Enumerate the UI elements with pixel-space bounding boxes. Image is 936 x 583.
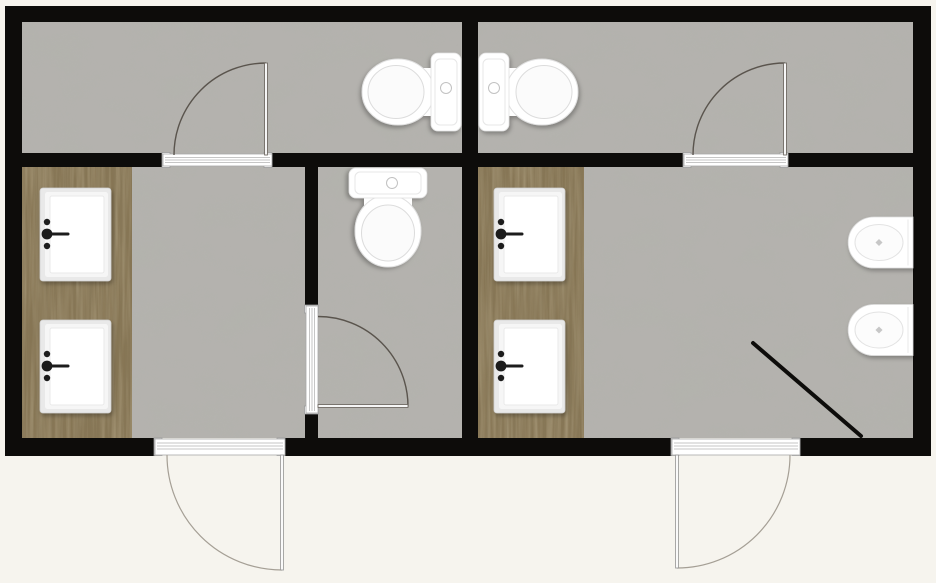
- sink-left-upper: [40, 188, 111, 281]
- door-leaf: [281, 455, 284, 570]
- wall-middle-b: [272, 153, 462, 167]
- floor-plan-drawing: Restroom floor plan — two washrooms with…: [0, 0, 936, 583]
- wall-middle-c: [478, 153, 684, 167]
- door-leaf: [318, 405, 408, 408]
- bidet-upper: [848, 217, 913, 268]
- bidet-lower: [848, 305, 913, 356]
- door-leaf: [784, 63, 787, 155]
- wall-outer-right: [913, 6, 931, 456]
- wall-outer-left: [5, 6, 22, 456]
- wall-center-divider: [462, 22, 478, 438]
- wall-outer-bottom-a: [5, 438, 155, 456]
- sink-left-lower: [40, 320, 111, 413]
- wall-outer-bottom-b: [285, 438, 672, 456]
- door-leaf: [265, 63, 268, 155]
- wall-middle-d: [788, 153, 913, 167]
- wall-wc-upper: [305, 167, 318, 306]
- wall-middle-a: [22, 153, 163, 167]
- wall-wc-lower: [305, 413, 318, 438]
- toilet-top-right: [479, 53, 578, 131]
- sink-right-lower: [494, 320, 565, 413]
- toilet-top-left: [362, 53, 461, 131]
- floor-plan-canvas: Restroom floor plan — two washrooms with…: [0, 0, 936, 583]
- toilet-central-wc: [349, 168, 427, 267]
- sink-right-upper: [494, 188, 565, 281]
- wall-outer-bottom-c: [800, 438, 931, 456]
- wall-outer-top: [5, 6, 931, 22]
- door-leaf: [676, 455, 679, 568]
